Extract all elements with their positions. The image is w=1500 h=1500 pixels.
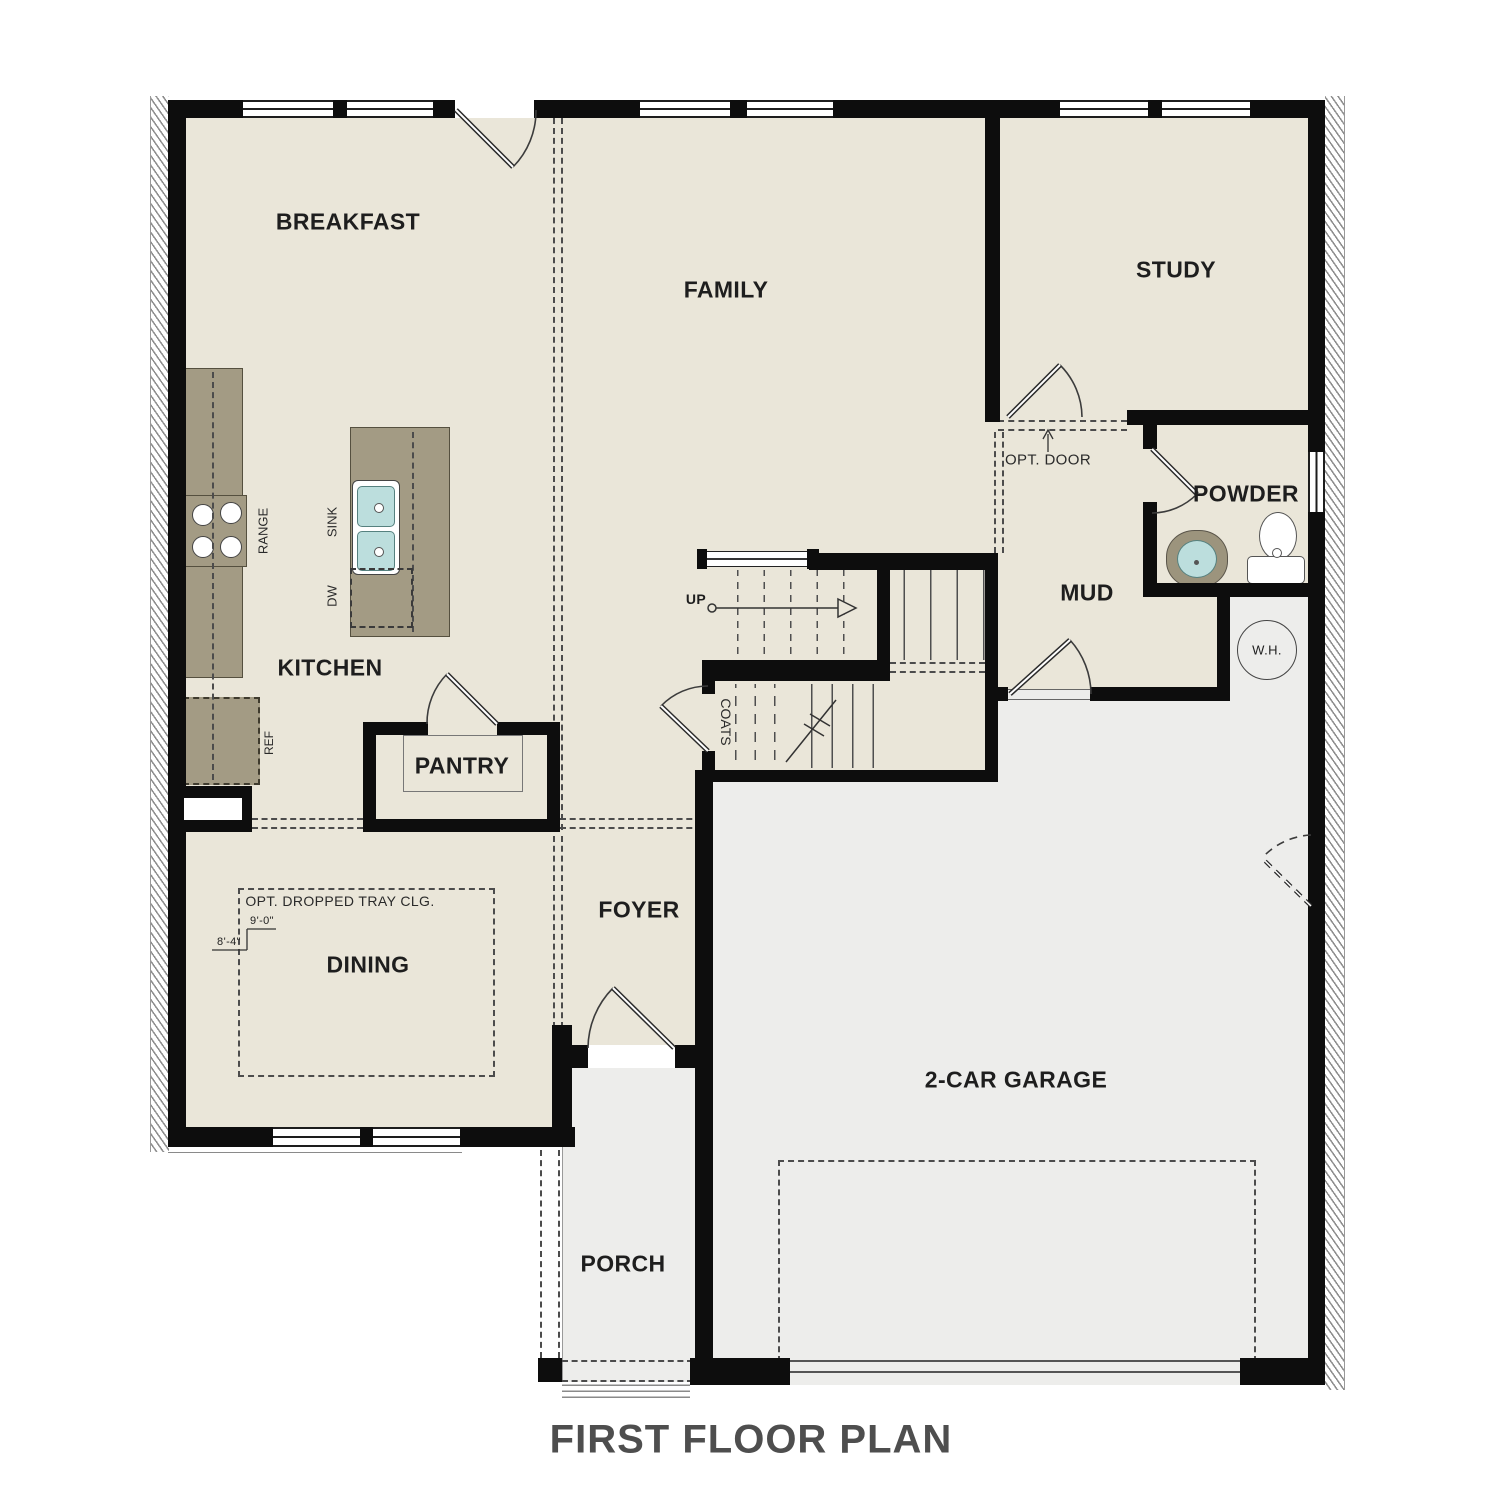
room-label-mud: MUD	[1060, 580, 1114, 607]
room-label-kitchen: KITCHEN	[277, 655, 382, 682]
wall-stair-inner	[877, 570, 890, 662]
hatch-left	[150, 96, 169, 1152]
porch-post	[538, 1358, 562, 1382]
porch-roof-line	[562, 1380, 693, 1382]
wall-garage-left	[695, 770, 713, 1385]
wall-mud-bottom	[1090, 687, 1230, 701]
label-ref: REF	[262, 731, 276, 755]
wall-stair-mid	[702, 660, 890, 681]
room-label-breakfast: BREAKFAST	[276, 209, 420, 236]
wall-powder-bottom	[1143, 583, 1325, 597]
dashed-separator	[560, 827, 702, 829]
room-label-family: FAMILY	[684, 277, 769, 304]
breakfast-door-opening	[455, 100, 534, 118]
room-label-dining: DINING	[327, 952, 410, 979]
burner-icon	[192, 504, 214, 526]
room-label-pantry: PANTRY	[415, 753, 509, 780]
dashed-separator	[561, 836, 563, 1028]
wall-right	[1308, 100, 1325, 1385]
window	[747, 100, 833, 118]
porch-steps	[562, 1384, 690, 1398]
toilet-hinge	[1272, 548, 1282, 558]
coats-door-opening	[702, 694, 715, 751]
room-label-study: STUDY	[1136, 257, 1216, 284]
window-sill-line	[168, 1152, 462, 1153]
dashed-separator	[561, 118, 563, 830]
dashed-separator	[1002, 432, 1004, 553]
room-label-porch: PORCH	[580, 1251, 665, 1278]
porch-roof-line	[540, 1150, 542, 1358]
pantry-door-opening	[428, 722, 497, 735]
floor-porch	[562, 1068, 695, 1382]
wall-pantry	[547, 722, 560, 832]
wall-study-bottom	[1127, 410, 1325, 425]
wall-left	[168, 100, 186, 1147]
garage-door-clearance	[778, 1160, 1256, 1362]
porch-roof-line	[562, 1360, 693, 1362]
sink-drain-icon	[374, 547, 384, 557]
wall-study-left	[985, 100, 1000, 422]
front-door-opening	[588, 1045, 675, 1068]
wall-pantry	[363, 819, 560, 832]
dishwasher	[350, 568, 413, 628]
wall-closet-left	[702, 660, 715, 694]
floor-garage-upper	[998, 700, 1308, 780]
burner-icon	[220, 536, 242, 558]
room-label-powder: POWDER	[1193, 481, 1299, 508]
floor-foyer	[560, 840, 710, 1068]
stair-railing	[704, 551, 814, 567]
label-dw: DW	[325, 585, 340, 607]
dashed-separator	[252, 818, 363, 820]
opt-door-opening	[998, 420, 1127, 422]
burner-icon	[192, 536, 214, 558]
dashed-separator	[560, 818, 702, 820]
window-mullion	[360, 1127, 373, 1147]
wall-stair-family	[809, 553, 998, 570]
stair-upper-run-solid	[852, 570, 985, 660]
understair-line	[890, 671, 985, 673]
label-range: RANGE	[256, 508, 271, 554]
opt-door-opening	[998, 429, 1127, 431]
window	[1308, 452, 1325, 512]
page-title: FIRST FLOOR PLAN	[550, 1418, 953, 1463]
floor-plan: BREAKFAST FAMILY STUDY KITCHEN PANTRY DI…	[0, 0, 1500, 1500]
window	[1060, 100, 1148, 118]
wall-pantry	[363, 722, 376, 832]
railing-cap	[697, 549, 707, 569]
burner-icon	[220, 502, 242, 524]
mud-door-opening	[1008, 689, 1090, 700]
range	[183, 495, 247, 567]
pedestal-sink-basin	[1177, 540, 1217, 578]
toilet-tank	[1247, 556, 1305, 584]
label-tray-ceiling: OPT. DROPPED TRAY CLG.	[245, 893, 434, 909]
powder-door-opening	[1143, 449, 1157, 502]
counter-centerline	[212, 372, 214, 780]
wall-powder	[1143, 425, 1157, 449]
dashed-separator	[994, 432, 996, 553]
label-tray-height-b: 8'-4"	[217, 936, 241, 948]
porch-roof-line	[558, 1150, 560, 1358]
window	[640, 100, 730, 118]
label-opt-door: OPT. DOOR	[1005, 452, 1091, 469]
dashed-separator	[553, 836, 555, 1028]
dashed-separator	[252, 827, 363, 829]
tray-ceiling-outline	[238, 888, 495, 1077]
wall-garage-bottom	[690, 1358, 790, 1385]
room-label-foyer: FOYER	[598, 897, 679, 924]
hatch-right	[1325, 96, 1345, 1390]
label-tray-height-a: 9'-0"	[250, 915, 274, 927]
label-water-heater: W.H.	[1252, 643, 1282, 658]
sink-drain-icon	[1194, 560, 1199, 565]
stair-lower-run	[792, 684, 877, 768]
refrigerator	[183, 697, 260, 785]
understair-line	[890, 662, 985, 664]
wall-wh	[1217, 597, 1230, 700]
label-up: UP	[686, 591, 706, 607]
wall-garage-bottom	[1240, 1358, 1325, 1385]
window	[1162, 100, 1250, 118]
room-label-garage: 2-CAR GARAGE	[925, 1067, 1107, 1094]
sink-drain-icon	[374, 503, 384, 513]
label-sink: SINK	[325, 507, 340, 537]
niche-opening	[184, 798, 242, 820]
garage-door	[790, 1360, 1240, 1373]
label-coats: COATS	[718, 698, 734, 745]
wall-mud-left	[985, 553, 998, 782]
wall-closet-front	[700, 770, 998, 782]
window	[347, 100, 433, 118]
stair-upper-run	[712, 570, 852, 660]
window	[243, 100, 333, 118]
wall-mud-bottom	[998, 687, 1008, 701]
